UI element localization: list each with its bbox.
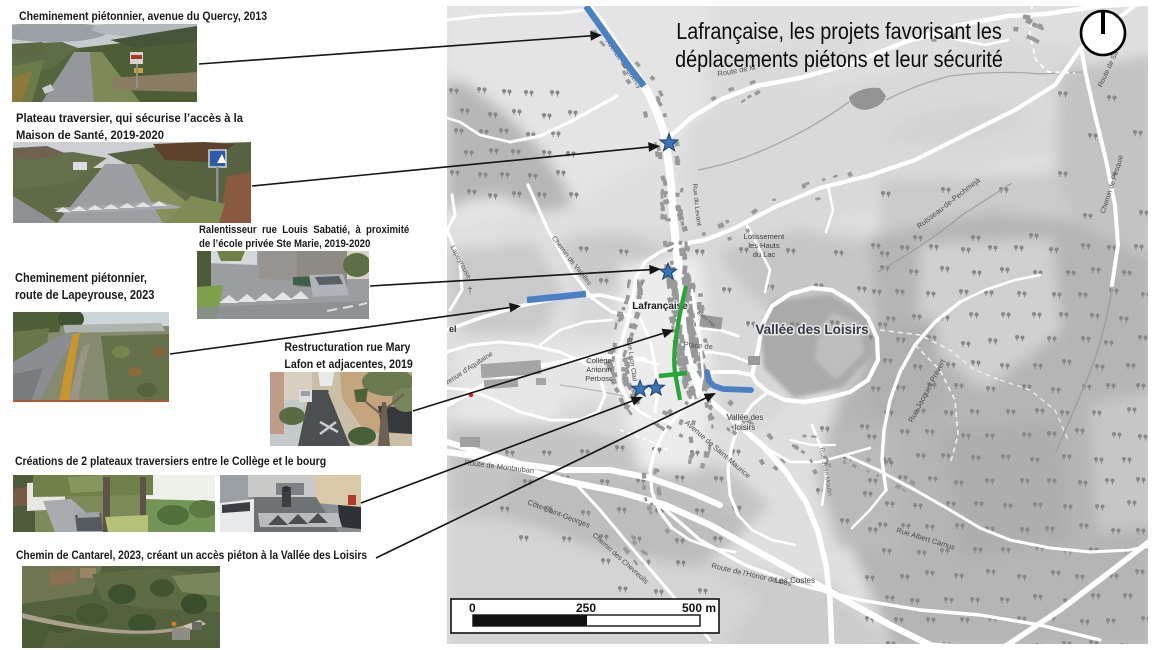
svg-text:0: 0 (469, 601, 476, 615)
svg-text:Antonin: Antonin (586, 365, 611, 374)
svg-text:†: † (467, 285, 472, 295)
svg-text:Perbosc: Perbosc (585, 374, 613, 383)
svg-text:Collège: Collège (586, 356, 611, 365)
svg-text:el: el (449, 324, 457, 334)
svg-text:500 m: 500 m (682, 601, 716, 615)
svg-text:250: 250 (576, 601, 596, 615)
svg-text:Lotissement: Lotissement (744, 232, 785, 241)
svg-text:les Hauts: les Hauts (748, 241, 780, 250)
svg-text:Vallée des Loisirs: Vallée des Loisirs (755, 322, 868, 337)
svg-text:Vallée des: Vallée des (727, 413, 764, 422)
svg-text:du Lac: du Lac (753, 250, 776, 259)
svg-text:loisirs: loisirs (735, 423, 755, 432)
